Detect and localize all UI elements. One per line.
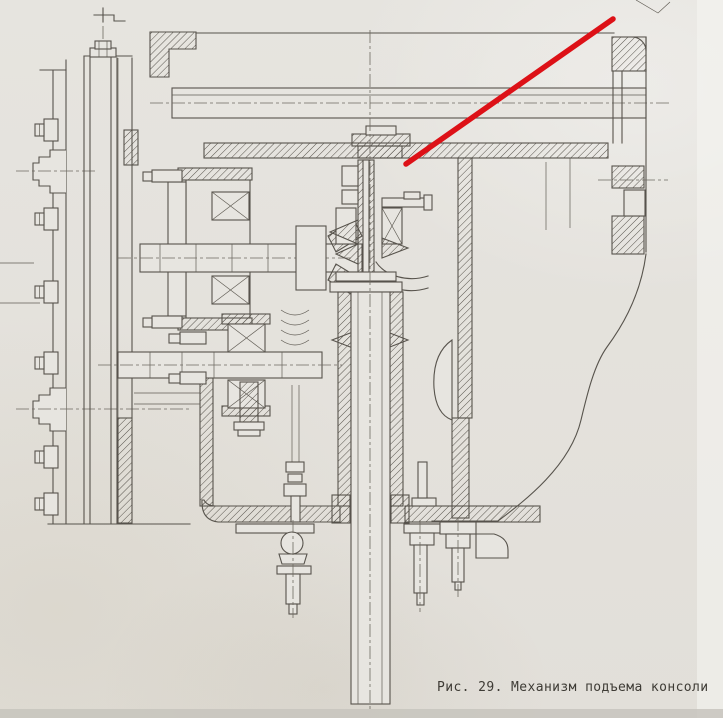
machine-column bbox=[16, 60, 190, 524]
figure-caption: Рис. 29. Механизм подъема консоли bbox=[437, 680, 708, 695]
upper-shaft-assembly bbox=[118, 168, 362, 330]
page-corner-mark bbox=[636, 0, 670, 13]
guideway-plates bbox=[84, 41, 138, 523]
section-mark bbox=[94, 8, 125, 46]
console-top-rails bbox=[150, 32, 672, 118]
edge-leader-lines bbox=[0, 263, 40, 303]
technical-drawing bbox=[0, 0, 723, 718]
lower-shaft-assembly bbox=[98, 310, 342, 522]
scanned-page: Рис. 29. Механизм подъема консоли bbox=[0, 0, 723, 718]
paper-bottom-edge bbox=[0, 709, 723, 718]
